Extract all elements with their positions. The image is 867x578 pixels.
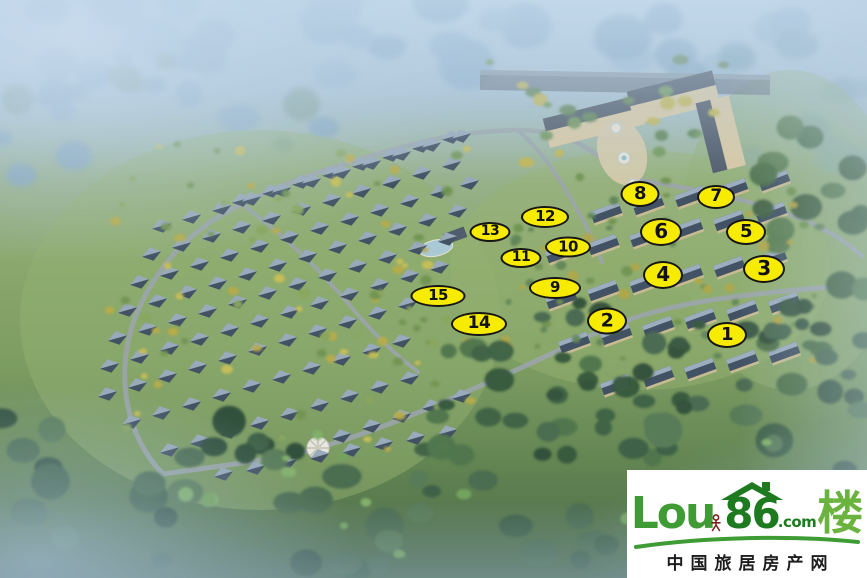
site-marker-4: 4 <box>643 261 683 289</box>
site-marker-8: 8 <box>621 181 660 207</box>
site-marker-number: 7 <box>710 186 721 206</box>
site-marker-number: 14 <box>468 313 491 333</box>
site-marker-10: 10 <box>545 237 591 258</box>
site-marker-2: 2 <box>587 308 627 335</box>
site-marker-5: 5 <box>726 219 766 245</box>
logo-text-lou: Lou <box>631 494 715 534</box>
site-marker-number: 15 <box>428 286 448 304</box>
site-marker-number: 3 <box>757 256 770 280</box>
person-icon <box>710 514 722 532</box>
site-marker-14: 14 <box>451 312 507 336</box>
site-marker-number: 10 <box>558 237 578 255</box>
site-marker-3: 3 <box>743 255 785 283</box>
site-marker-12: 12 <box>521 206 569 228</box>
site-marker-number: 1 <box>721 324 733 345</box>
site-marker-1: 1 <box>707 322 747 348</box>
site-marker-number: 12 <box>535 207 555 225</box>
logo-text-com: .com <box>778 513 817 531</box>
site-marker-number: 4 <box>656 262 669 286</box>
site-marker-number: 2 <box>601 309 614 331</box>
site-marker-15: 15 <box>411 285 466 307</box>
site-marker-11: 11 <box>501 248 542 268</box>
logo-house-86: 86 <box>724 495 778 534</box>
site-marker-6: 6 <box>640 218 682 246</box>
logo-text-lou-cn: 楼 <box>817 493 863 534</box>
site-marker-13: 13 <box>470 222 511 242</box>
site-marker-number: 13 <box>481 223 499 239</box>
house-roof-icon <box>721 480 783 500</box>
masterplan-image: 1 2 3 4 5 6 7 8 9 10 11 12 13 14 15 <box>0 0 867 578</box>
site-marker-number: 11 <box>512 249 530 265</box>
site-marker-number: 9 <box>550 278 560 296</box>
logo-tagline: 中国旅居房产网 <box>660 549 835 574</box>
site-marker-number: 8 <box>634 183 646 204</box>
site-marker-number: 5 <box>740 221 752 242</box>
logo-brand-row: Lou 86 .com 楼 <box>631 478 864 534</box>
site-marker-7: 7 <box>697 185 735 209</box>
site-marker-9: 9 <box>529 277 581 299</box>
lou86-logo-watermark: Lou 86 .com 楼 中国旅居房产网 <box>627 470 867 578</box>
site-marker-number: 6 <box>654 219 667 243</box>
